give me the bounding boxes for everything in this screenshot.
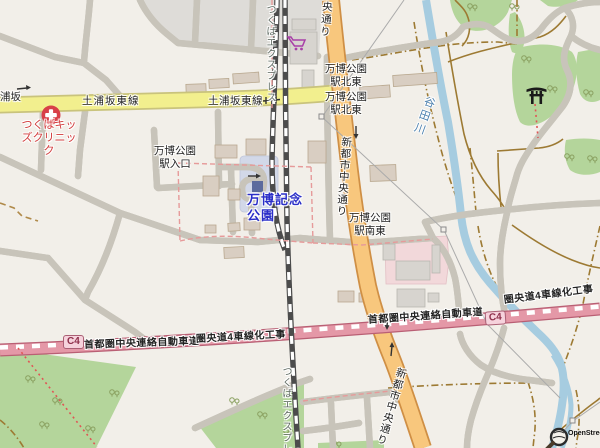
- osm-attribution[interactable]: OpenStreetMap: [568, 430, 600, 438]
- place-label-expo-entrance: 万博公園 駅入口: [150, 145, 200, 170]
- route-shield-c4-left: C4: [63, 335, 84, 349]
- poi-label-tsukuba-kids-clinic: つくばキッ ズクリニッ ク: [18, 119, 80, 159]
- place-label-expo-northeast-2: 万博公園 駅北東: [322, 91, 370, 116]
- route-shield-c4-right: C4: [485, 310, 507, 325]
- map-layers: [0, 0, 600, 448]
- road-label-tsuchiura-left: 土浦坂東線: [82, 95, 140, 108]
- road-label-tsuchiura-right: 土浦坂東線: [208, 95, 263, 108]
- road-label-partial: 浦坂: [0, 91, 21, 104]
- railway-label-top: つくばエクスプレス: [263, 4, 275, 103]
- train-station-icon: [252, 181, 263, 192]
- railway-label-bottom: つくばエクスプレ: [279, 366, 291, 448]
- buildings: [186, 19, 440, 307]
- place-label-expo-southeast: 万博公園 駅南東: [346, 212, 394, 237]
- place-label-expo-northeast-1: 万博公園 駅北東: [322, 63, 370, 88]
- station-label-bampaku-kinen-koen: 万博記念 公園: [247, 192, 309, 223]
- map-canvas[interactable]: 浦坂 土浦坂東線 土浦坂東線 つくばエクスプレス つくばエクスプレ 中央通り 新…: [0, 0, 600, 448]
